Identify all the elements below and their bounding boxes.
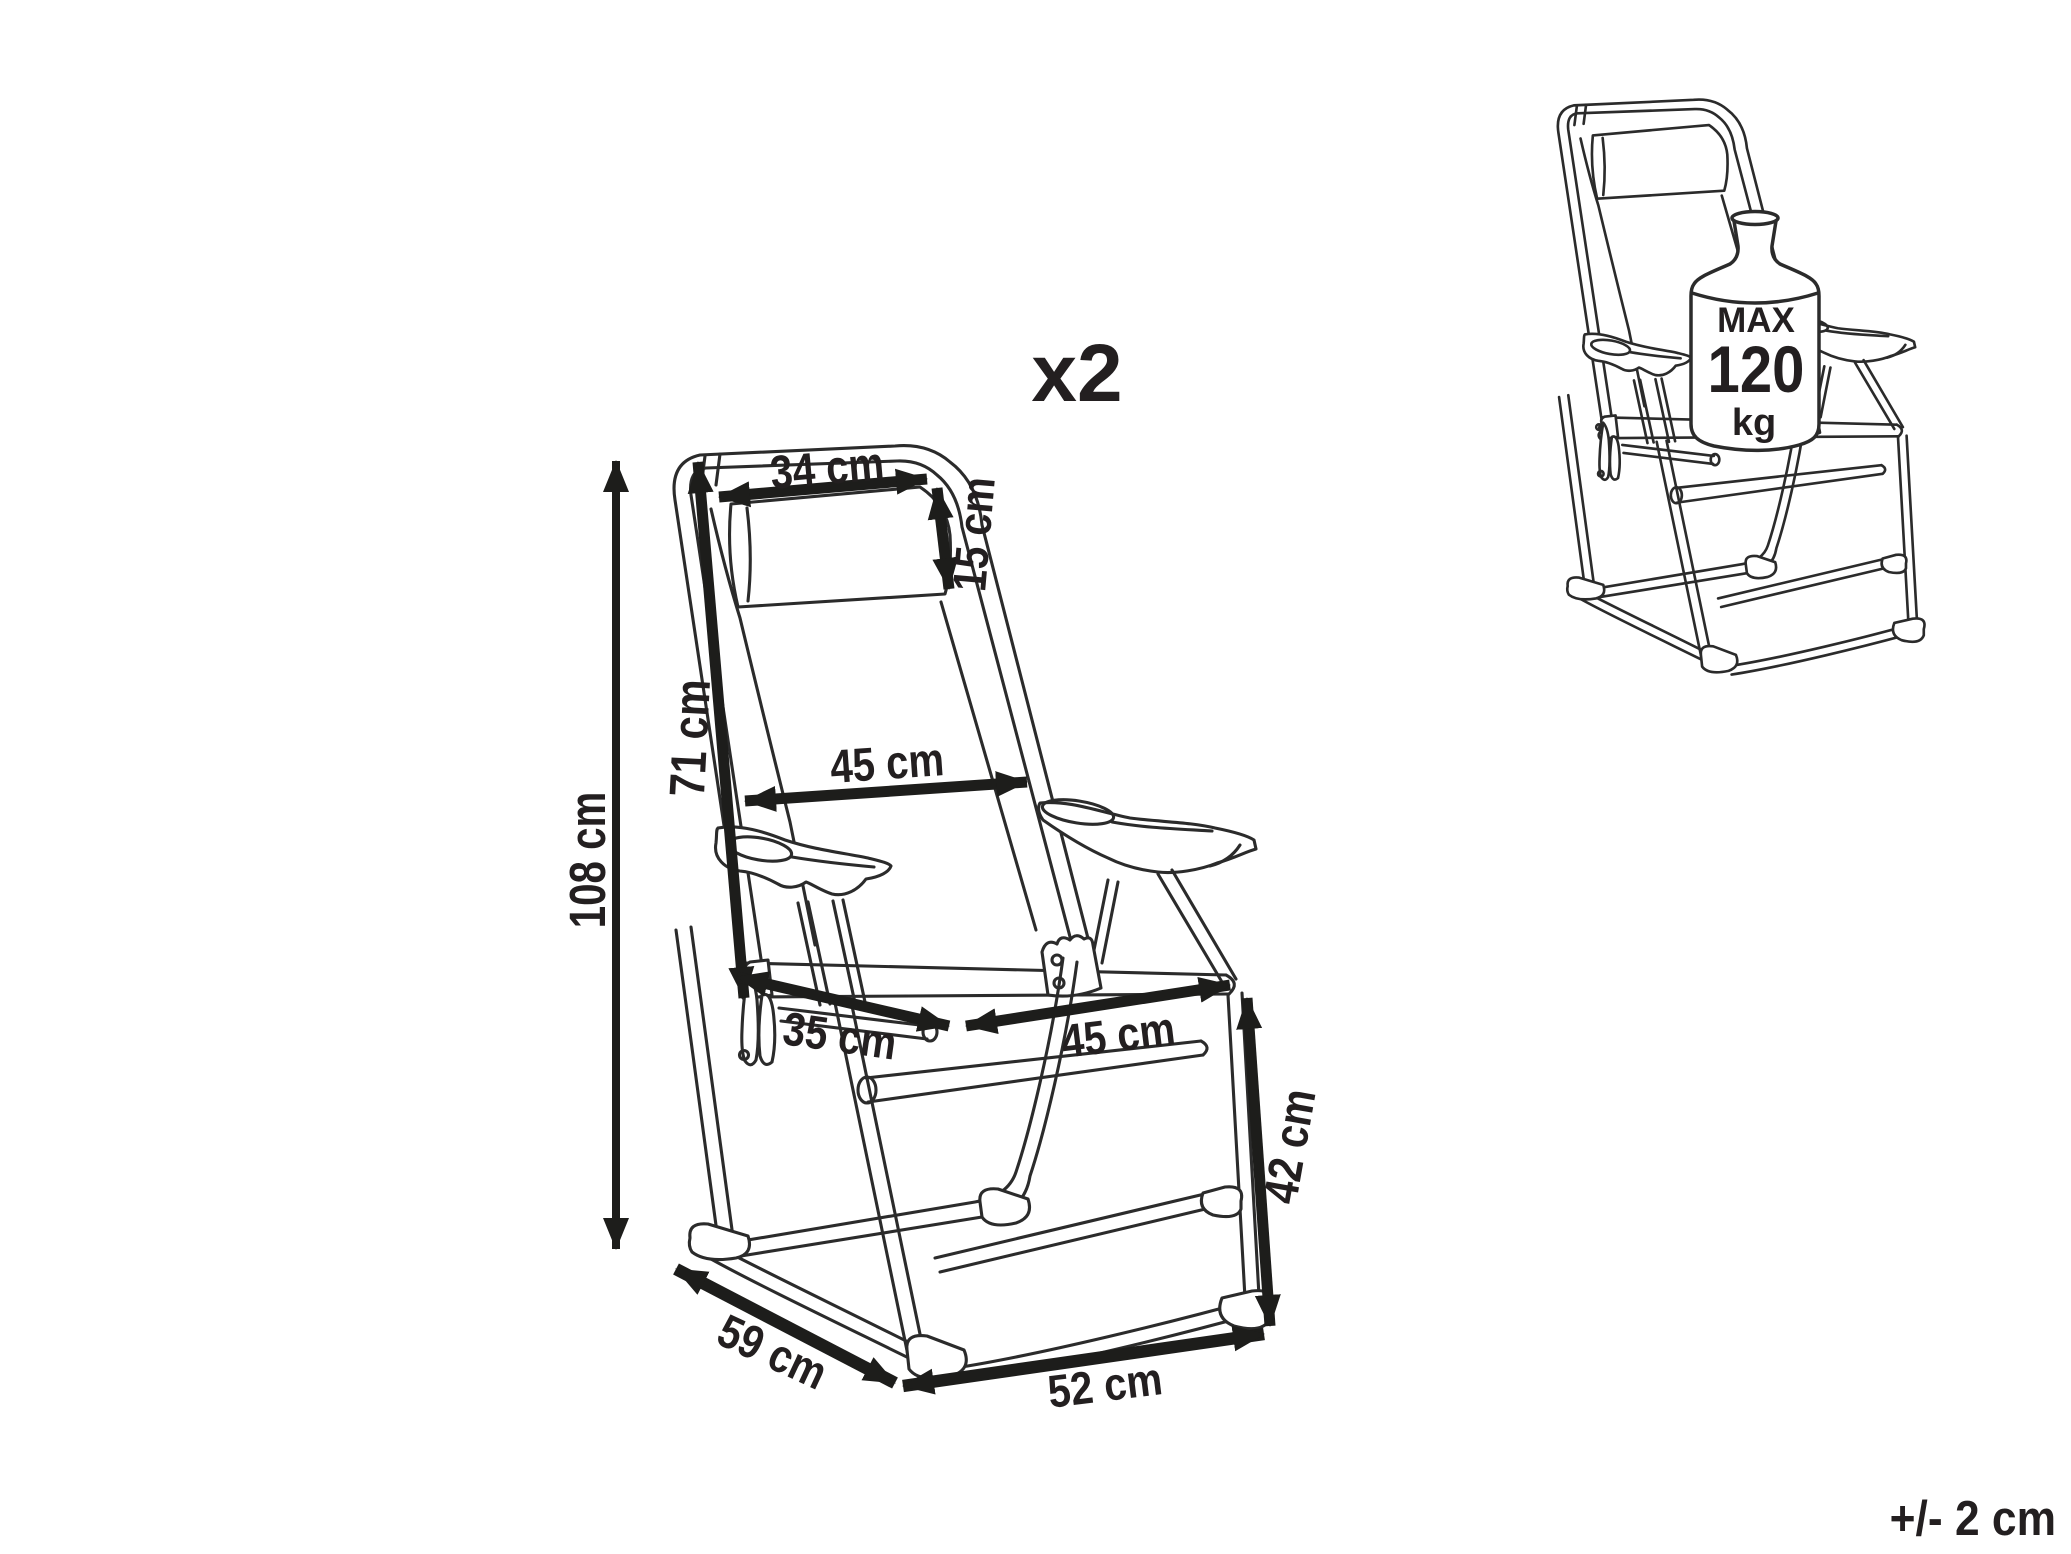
svg-text:71 cm: 71 cm (658, 678, 721, 798)
svg-text:120: 120 (1708, 334, 1805, 407)
svg-text:108 cm: 108 cm (558, 792, 616, 929)
svg-text:15 cm: 15 cm (943, 475, 1005, 594)
svg-text:+/- 2 cm: +/- 2 cm (1890, 1491, 2056, 1546)
svg-text:kg: kg (1732, 402, 1776, 444)
svg-text:x2: x2 (1031, 328, 1122, 419)
svg-text:45 cm: 45 cm (828, 733, 945, 793)
svg-text:34 cm: 34 cm (768, 437, 886, 499)
